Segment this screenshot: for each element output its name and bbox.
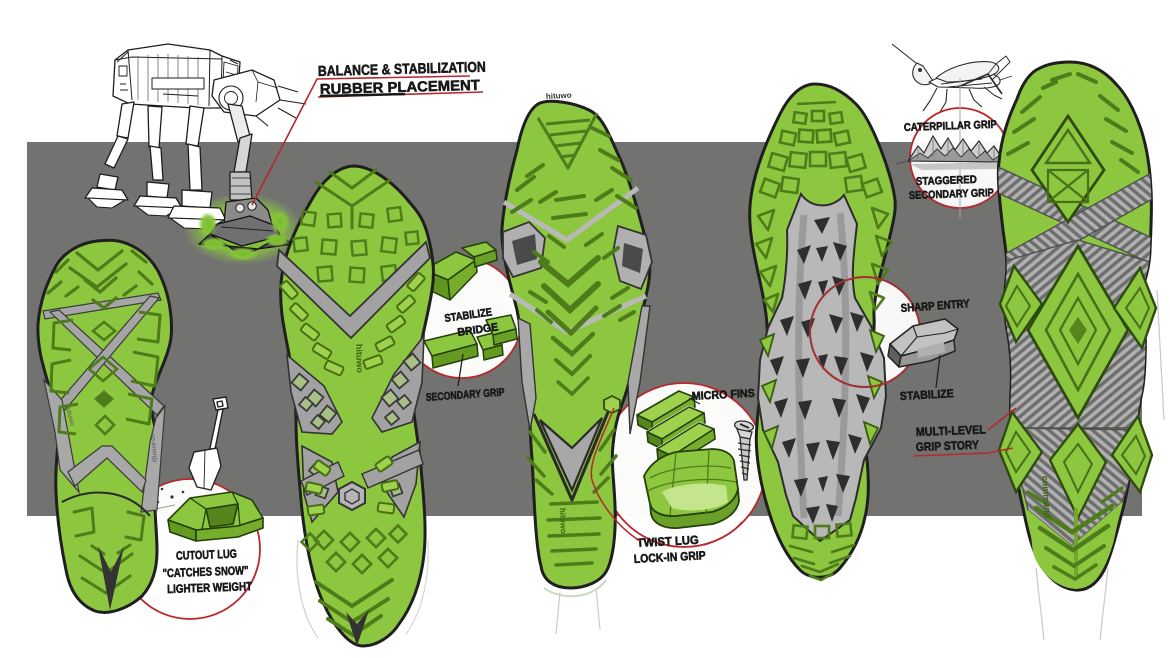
svg-text:hituwo: hituwo [354,344,365,374]
svg-text:CUTOUT LUG: CUTOUT LUG [176,547,237,563]
svg-text:hituwo: hituwo [558,508,568,534]
svg-text:MULTI-LEVEL: MULTI-LEVEL [916,423,986,439]
svg-text:GRIP STORY: GRIP STORY [916,438,979,454]
svg-text:LIGHTER WEIGHT: LIGHTER WEIGHT [167,579,253,596]
svg-text:"CATCHES SNOW": "CATCHES SNOW" [162,563,248,580]
svg-text:STAGGERED: STAGGERED [916,174,977,188]
svg-text:hituwo: hituwo [546,91,572,101]
